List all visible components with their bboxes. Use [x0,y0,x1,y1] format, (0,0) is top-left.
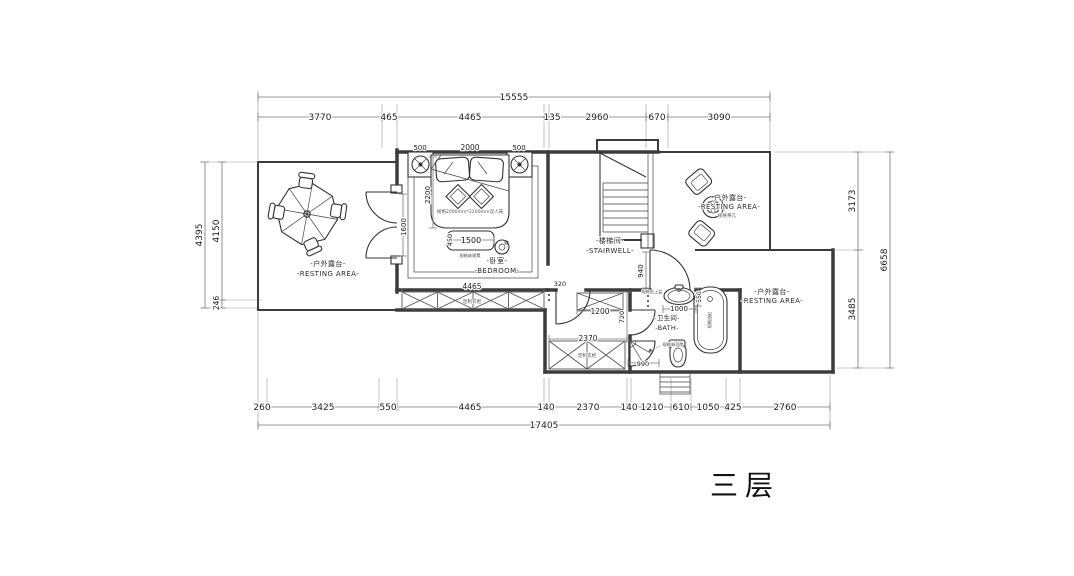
dim-bottom-seg: 140 [620,403,637,413]
background [0,0,1074,576]
dim-basin-depth: 550 [696,291,703,303]
dim-lower-wardrobe: 2370 [578,334,597,343]
bench-spec-label: 规格床尾凳 [460,252,482,259]
dim-left-outer: 4395 [195,224,205,247]
room-stairwell-zh: -楼梯间- [596,236,624,245]
dim-bed-right: 500 [512,144,525,152]
dim-bed-width: 2000 [460,143,479,152]
dim-bottom-seg: 3425 [312,403,335,413]
dim-closet-top: 1200 [590,307,609,316]
dim-top-seg: 135 [543,113,560,123]
dim-bottom-seg: 1210 [641,403,664,413]
dim-basin-width: 1000 [670,305,688,313]
room-terrace-topright-en: -RESTING AREA- [698,203,760,211]
dim-top-seg: 4465 [459,113,482,123]
dim-bench-length: 1500 [461,236,481,245]
dim-right-total: 6658 [880,248,890,271]
dim-left-lower: 246 [212,296,221,311]
door-frame [391,256,402,264]
pillow-right [469,157,504,182]
dim-bottom-seg: 610 [672,403,689,413]
dim-bottom-seg: 260 [253,403,270,413]
room-terrace-bottomright-zh: -户外露台- [754,287,790,296]
dim-top-seg: 3090 [708,113,731,123]
dim-bed-left: 500 [413,144,426,152]
shower-label: 规格淋浴房 [663,341,684,348]
dim-closet-depth: 720 [618,311,626,323]
room-terrace-left-en: -RESTING AREA- [297,270,359,278]
dim-corridor-wardrobe: 4465 [462,282,481,291]
floor-plan-canvas: 15555 3770 465 4465 135 2960 670 3090 26… [0,0,1074,576]
dim-bed-length: 2200 [424,186,432,204]
dim-bottom-seg: 1050 [697,403,720,413]
dim-top-seg: 670 [648,113,665,123]
lower-wardrobe-label: 定制衣柜 [578,352,597,359]
dim-closet-door-stub: 320 [554,280,566,288]
tea-table-label: 规格茶几 [718,212,737,219]
room-stairwell-en: -STAIRWELL- [586,247,634,255]
room-terrace-topright-zh: -户外露台- [711,193,747,202]
dim-top-total: 15555 [500,93,529,103]
bathtub-label: 规格浴缸 [706,311,713,329]
room-bath-zh: -卫生间- [654,313,680,322]
dim-bottom-seg: 425 [724,403,741,413]
floor-title: 三层 [710,469,780,502]
room-bedroom-zh: -卧室- [487,256,508,265]
dim-top-seg: 465 [380,113,397,123]
dim-bottom-seg: 140 [537,403,554,413]
dim-bottom-seg: 550 [379,403,396,413]
basin-label: 规格台上盆 [642,288,664,295]
room-bath-en: -BATH- [655,324,679,332]
bed-spec-label: 规格2000mm*2200mm双人床 [437,208,504,215]
dim-right-lower: 3485 [848,298,858,321]
dim-bottom-seg: 2370 [577,403,600,413]
dim-shower-width: 990 [637,360,649,368]
room-bedroom-en: -BEDROOM- [475,267,520,275]
corridor-wardrobe-label: 定制衣柜 [463,298,482,305]
dim-terrace-door: 1600 [400,218,408,236]
dim-right-upper: 3173 [848,190,858,213]
dim-left-upper: 4150 [212,219,222,242]
dim-bottom-seg: 4465 [459,403,482,413]
dim-top-seg: 2960 [586,113,609,123]
dim-hall-door: 940 [637,264,645,277]
room-terrace-left-zh: -户外露台- [310,259,346,268]
dim-top-seg: 3770 [309,113,332,123]
dim-bottom-seg: 2760 [774,403,797,413]
dim-bench-depth: 450 [446,234,454,246]
dim-bottom-total: 17405 [530,421,559,431]
room-terrace-bottomright-en: -RESTING AREA- [741,297,803,305]
